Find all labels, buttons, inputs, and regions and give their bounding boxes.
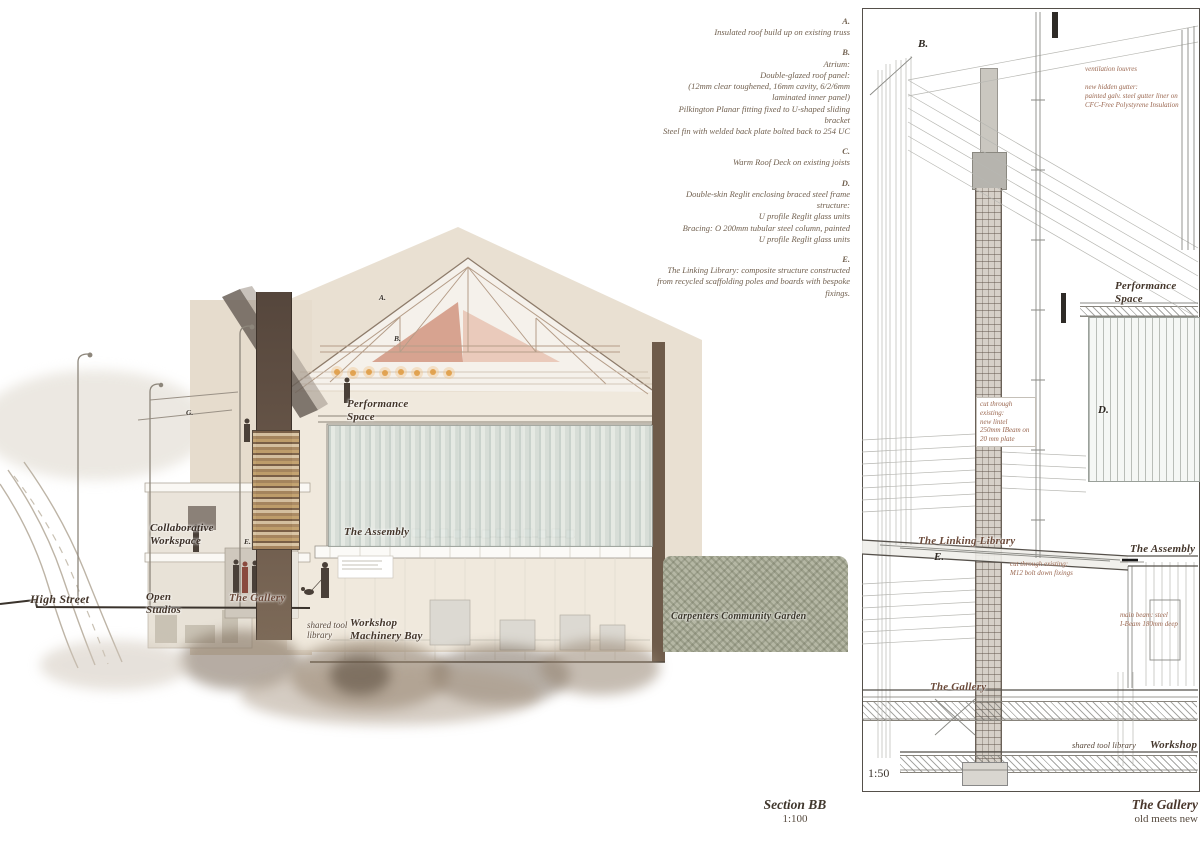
smoke-7 [40,640,190,690]
marker-g: G. [186,408,193,417]
detail-caption-subtitle: old meets new [1040,813,1198,825]
bookshelf-texture [252,430,300,550]
section-caption: Section BB 1:100 [730,797,860,825]
detail-label-linking-library: The Linking Library [918,535,1015,548]
label-the-assembly: The Assembly [344,526,409,539]
garden-hedge [663,556,848,652]
detail-note-gutter: new hidden gutter: painted galv. steel g… [1085,83,1179,109]
marker-b: B. [394,334,401,343]
section-bb-drawing: Performance Space The Assembly Workshop … [0,0,860,848]
label-shared-tool-library: shared tool library [307,620,347,641]
detail-label-performance-space: Performance Space [1115,280,1176,305]
label-carpenters-garden: Carpenters Community Garden [671,611,806,623]
section-caption-scale: 1:100 [730,813,860,825]
detail-label-the-gallery: The Gallery [930,681,986,694]
detail-note-bolt: cut through existing: M12 bolt down fixi… [1010,560,1073,578]
label-workshop-machinery-bay: Workshop Machinery Bay [350,617,423,642]
detail-label-workshop: Workshop [1150,739,1197,752]
presentation-board: A. Insulated roof build up on existing t… [0,0,1200,848]
label-open-studios: Open Studios [146,591,181,616]
detail-marker-d: D. [1098,404,1109,416]
detail-caption: The Gallery old meets new [1040,797,1198,825]
detail-caption-title: The Gallery [1040,797,1198,813]
section-caption-title: Section BB [730,797,860,813]
hedge-texture [663,556,848,652]
marker-a: A. [379,293,386,302]
detail-label-shared-tool-library: shared tool library [1072,741,1136,751]
detail-note-lintel: cut through existing: new lintel 250mm I… [976,397,1036,447]
detail-marker-b: B. [918,38,928,50]
fine-lines [862,26,1198,766]
detail-label-the-assembly: The Assembly [1130,543,1195,556]
road-curves [0,462,122,668]
label-collaborative-workspace: Collaborative Workspace [150,522,214,547]
detail-note-beam: main beam: steel I-Beam 180mm deep [1120,611,1178,629]
smoke-6 [330,655,390,695]
label-high-street: High Street [30,593,89,607]
detail-note-ventilation: ventilation louvres [1085,65,1137,74]
detail-marker-e: E. [934,551,944,563]
marker-e: E. [244,537,251,546]
label-the-gallery: The Gallery [229,592,285,605]
detail-scale: 1:50 [868,766,889,781]
smoke-5 [240,665,540,725]
smoke-4 [540,640,660,695]
label-performance-space: Performance Space [347,398,408,423]
